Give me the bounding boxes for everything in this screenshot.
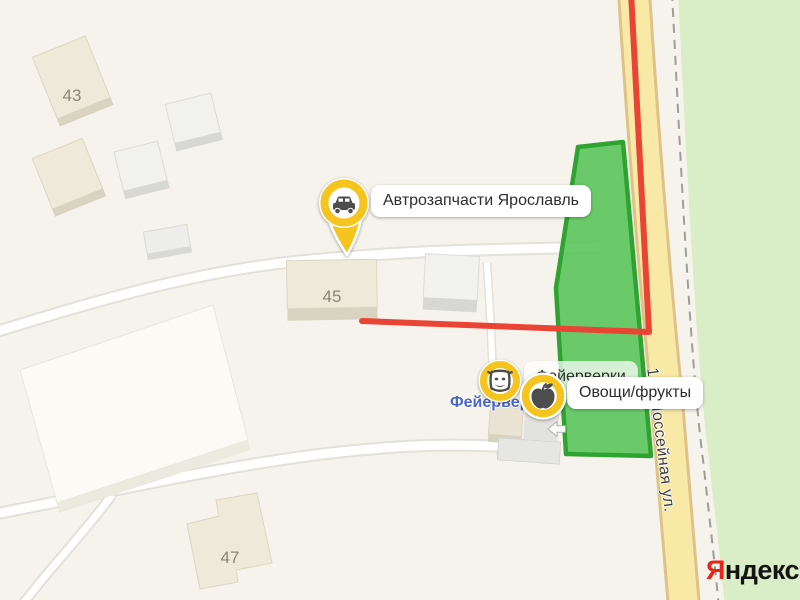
vegetation-area xyxy=(678,0,800,600)
car-pin[interactable] xyxy=(313,174,375,260)
produce-plaque[interactable]: Овощи/фрукты xyxy=(567,377,703,409)
building-47 xyxy=(187,493,272,589)
building-block xyxy=(423,254,480,313)
building-number-45: 45 xyxy=(323,287,342,307)
large-building xyxy=(20,305,250,513)
auto-parts-plaque[interactable]: Автрозапчасти Ярославль xyxy=(371,185,591,217)
theater-pin[interactable] xyxy=(478,359,522,403)
building-number-47: 47 xyxy=(221,548,240,568)
building-number-43: 43 xyxy=(63,86,82,106)
produce-pin[interactable] xyxy=(519,372,567,420)
yandex-logo-rest: ндекс xyxy=(725,555,799,585)
map-canvas[interactable]: 43 45 47 1-я Шоссейная ул. Фейерверки Фе… xyxy=(0,0,800,600)
building-block xyxy=(32,138,105,216)
yandex-logo-ya: Я xyxy=(706,555,725,585)
building-block xyxy=(165,93,222,151)
building-block xyxy=(143,224,191,259)
building-block xyxy=(114,141,169,198)
yandex-logo[interactable]: Яндекс xyxy=(706,555,799,586)
map-base-layer xyxy=(0,0,800,600)
building-43 xyxy=(32,36,113,126)
